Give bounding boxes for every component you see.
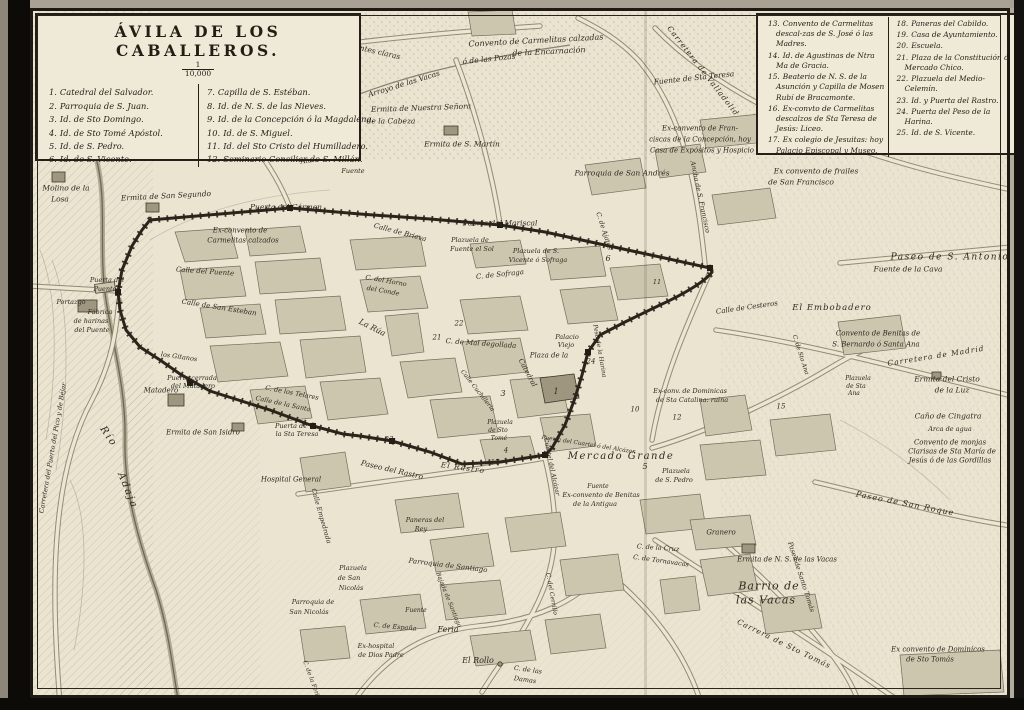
legend-item: 2.Parroquia de S. Juan. (49, 100, 196, 113)
legend-item-number: 11. (207, 141, 220, 151)
legend-item-number: 1. (49, 87, 57, 97)
legend-item-text: Plaza de la Constitución ó Mercado Chico… (905, 53, 1009, 72)
legend-item: 9.Id. de la Concepción ó la Magdalena. (207, 113, 351, 126)
legend-item: 20.Escuela. (897, 41, 1012, 51)
map-title: ÁVILA DE LOS CABALLEROS. (37, 22, 359, 60)
legend-item-number: 4. (49, 128, 57, 138)
legend-item: 15.Beaterio de N. S. de la Asunción y Ca… (768, 72, 886, 103)
legend-item: 1.Catedral del Salvador. (49, 86, 196, 99)
legend-item-number: 10. (207, 128, 220, 138)
legend-item-text: Ex-convto de Carmelitas descalzos de Sta… (776, 104, 877, 133)
legend-item-number: 9. (207, 114, 215, 124)
legend-item: 8.Id. de N. S. de las Nieves. (207, 100, 351, 113)
legend-item: 5.Id. de S. Pedro. (49, 140, 196, 153)
legend-item-number: 16. (768, 104, 780, 113)
legend-column-3: 13.Convento de Carmelitas descal-zas de … (762, 17, 888, 157)
fabrica-building (78, 300, 97, 312)
legend-item-number: 25. (897, 128, 909, 137)
scale-denominator: 10,000 (182, 69, 214, 78)
legend-item-number: 24. (897, 107, 909, 116)
legend-item-number: 12. (207, 154, 220, 164)
legend-item: 12.Seminario Conciliar de S. Millán. (207, 153, 351, 166)
map-sheet: + + + + + Camino de Fuentes clarasConven… (0, 0, 1024, 710)
legend-item-text: Id. del Sto Cristo del Humilladero. (223, 141, 368, 151)
legend-item: 17.Ex colegio de Jesuitas: hoy Palacio E… (768, 135, 886, 155)
legend-item: 21.Plaza de la Constitución ó Mercado Ch… (897, 53, 1012, 73)
legend-item-number: 3. (49, 114, 57, 124)
legend-item-text: Id. de la Concepción ó la Magdalena. (218, 114, 374, 124)
legend-item-text: Id. y Puerta del Rastro. (911, 96, 998, 105)
legend-item-text: Id. de S. Pedro. (60, 141, 124, 151)
ermita-san-segundo-building (146, 203, 159, 212)
legend-item: 7.Capilla de S. Estéban. (207, 86, 351, 99)
legend-item-number: 20. (897, 41, 909, 50)
legend-item-number: 14. (768, 51, 780, 60)
scale-fraction: 1 10,000 (37, 61, 359, 80)
legend-item-number: 18. (897, 19, 909, 28)
legend-item: 22.Plazuela del Medio-Celemín. (897, 74, 1012, 94)
legend-item-number: 15. (768, 72, 780, 81)
ermita-cristo-luz-building (932, 372, 941, 379)
title-legend-box: ÁVILA DE LOS CABALLEROS. 1 10,000 1.Cate… (35, 13, 361, 161)
legend-item-text: Catedral del Salvador. (60, 87, 153, 97)
legend-item-text: Paneras del Cabildo. (911, 19, 988, 28)
legend-item-text: Parroquia de S. Juan. (60, 101, 149, 111)
legend-item-number: 23. (897, 96, 909, 105)
legend-item: 16.Ex-convto de Carmelitas descalzos de … (768, 104, 886, 135)
el-rollo-marker (498, 662, 502, 666)
legend-item-text: Beaterio de N. S. de la Asunción y Capil… (776, 72, 884, 101)
legend-item-text: Capilla de S. Estéban. (218, 87, 310, 97)
ermita-san-isidro-building (232, 423, 244, 431)
legend-item-text: Casa de Ayuntamiento. (911, 30, 997, 39)
legend-item-text: Puerta del Peso de la Harina. (905, 107, 991, 126)
legend-item-number: 19. (897, 30, 909, 39)
cathedral-footprint (540, 374, 579, 403)
legend-item-text: Convento de Carmelitas descal-zas de S. … (776, 19, 873, 48)
legend-item: 6.Id. de S. Vicente. (49, 153, 196, 166)
legend-column-4: 18.Paneras del Cabildo.19.Casa de Ayunta… (888, 17, 1014, 157)
matadero-building (168, 394, 184, 406)
legend-item-text: Id. de N. S. de las Nieves. (218, 101, 326, 111)
legend-item-text: Ex colegio de Jesuitas: hoy Palacio Epis… (776, 135, 883, 154)
legend-item-text: Plazuela del Medio-Celemín. (905, 74, 985, 93)
legend-item: 24.Puerta del Peso de la Harina. (897, 107, 1012, 127)
legend-item-number: 5. (49, 141, 57, 151)
legend-item-number: 6. (49, 154, 57, 164)
ermita-vacas-building (742, 544, 755, 553)
legend-item-number: 22. (897, 74, 909, 83)
legend-item: 13.Convento de Carmelitas descal-zas de … (768, 19, 886, 50)
legend-column-2: 7.Capilla de S. Estéban.8.Id. de N. S. d… (198, 84, 353, 167)
legend-item: 4.Id. de Sto Tomé Apóstol. (49, 127, 196, 140)
legend-item: 25.Id. de S. Vicente. (897, 128, 1012, 138)
legend-item-number: 21. (897, 53, 909, 62)
legend-item-text: Id. de S. Vicente. (911, 128, 975, 137)
legend-item: 10.Id. de S. Miguel. (207, 127, 351, 140)
legend-column-1: 1.Catedral del Salvador.2.Parroquia de S… (43, 84, 198, 167)
legend-item: 3.Id. de Sto Domingo. (49, 113, 196, 126)
legend-item-number: 13. (768, 19, 780, 28)
legend-item-text: Id. de S. Miguel. (223, 128, 292, 138)
legend-item-text: Id. de Sto Domingo. (60, 114, 144, 124)
legend-item-number: 7. (207, 87, 215, 97)
legend-item: 14.Id. de Agustinas de Ntra Ma de Gracia… (768, 51, 886, 71)
legend-item-number: 8. (207, 101, 215, 111)
legend-item-text: Id. de Agustinas de Ntra Ma de Gracia. (776, 51, 875, 70)
legend-item-text: Id. de Sto Tomé Apóstol. (60, 128, 163, 138)
ermita-san-martin-building (444, 126, 458, 135)
legend-item-number: 17. (768, 135, 780, 144)
legend-item: 23.Id. y Puerta del Rastro. (897, 96, 1012, 106)
legend-box-right: 13.Convento de Carmelitas descal-zas de … (756, 13, 1019, 155)
legend-item-text: Id. de S. Vicente. (60, 154, 132, 164)
molino-building (52, 172, 65, 182)
legend-item-text: Escuela. (911, 41, 943, 50)
legend-item-text: Seminario Conciliar de S. Millán. (223, 154, 362, 164)
legend-item-number: 2. (49, 101, 57, 111)
scale-numerator: 1 (182, 61, 214, 69)
legend-item: 11.Id. del Sto Cristo del Humilladero. (207, 140, 351, 153)
legend-item: 18.Paneras del Cabildo. (897, 19, 1012, 29)
legend-item: 19.Casa de Ayuntamiento. (897, 30, 1012, 40)
